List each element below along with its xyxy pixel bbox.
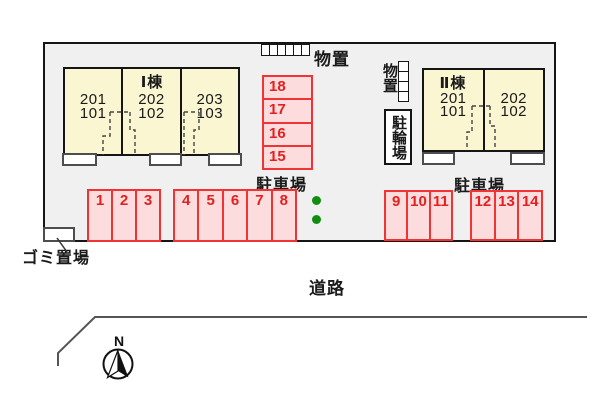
storage-shed-row xyxy=(262,44,310,56)
parking-space-15: 15 xyxy=(264,145,311,168)
parking-space-14: 14 xyxy=(517,192,541,239)
parking-space-10: 10 xyxy=(406,192,428,239)
parking-space-3: 3 xyxy=(135,191,159,240)
parking-space-2: 2 xyxy=(111,191,135,240)
unit-2-2: 202 102 xyxy=(483,70,544,150)
unit-1-3: 203 103 xyxy=(180,69,238,154)
entrance-porch xyxy=(62,153,97,166)
entrance-porch xyxy=(208,153,242,166)
room-number-lower: 102 xyxy=(500,105,527,119)
building-2-name: Ⅱ棟 xyxy=(424,72,482,93)
road-edge-line xyxy=(58,317,587,366)
parking-space-1: 1 xyxy=(89,191,111,240)
parking-space-4: 4 xyxy=(175,191,197,240)
parking-space-18: 18 xyxy=(264,77,311,98)
storage-right-label: 物置 xyxy=(382,63,396,93)
parking-space-5: 5 xyxy=(197,191,221,240)
parking-row-4-8: 4 5 6 7 8 xyxy=(173,189,297,242)
green-marker-dot xyxy=(312,196,321,205)
room-number-lower: 101 xyxy=(80,107,107,121)
parking-space-12: 12 xyxy=(472,192,494,239)
room-number-lower: 102 xyxy=(138,107,165,121)
parking-space-8: 8 xyxy=(271,191,295,240)
parking-space-6: 6 xyxy=(222,191,246,240)
entrance-porch xyxy=(149,153,182,166)
entrance-porch xyxy=(510,152,545,165)
parking-space-9: 9 xyxy=(386,192,406,239)
storage-unit xyxy=(398,91,409,102)
parking-space-7: 7 xyxy=(246,191,270,240)
room-number-lower: 101 xyxy=(440,105,467,119)
parking-column: 18 17 16 15 xyxy=(262,75,313,170)
parking-space-16: 16 xyxy=(264,122,311,145)
north-letter: N xyxy=(114,333,124,349)
north-arrow-icon: N xyxy=(104,333,133,379)
storage-shed-column xyxy=(398,62,409,102)
road-label: 道路 xyxy=(309,274,345,299)
room-number-lower: 103 xyxy=(197,107,224,121)
entrance-porch xyxy=(422,152,455,165)
unit-1-1: 201 101 xyxy=(65,69,121,154)
green-marker-dot xyxy=(312,215,321,224)
garbage-box xyxy=(43,227,75,242)
parking-row-1-3: 1 2 3 xyxy=(87,189,161,242)
parking-space-17: 17 xyxy=(264,98,311,121)
bicycle-parking-label: 駐輪場 xyxy=(391,115,405,160)
site-plan: 物置 201 101 202 102 203 103 Ⅰ棟 201 101 20… xyxy=(0,0,600,400)
parking-space-11: 11 xyxy=(429,192,451,239)
parking-space-13: 13 xyxy=(494,192,518,239)
storage-unit xyxy=(301,44,310,56)
garbage-label: ゴミ置場 xyxy=(22,244,90,268)
storage-top-label: 物置 xyxy=(314,45,350,70)
building-1-name: Ⅰ棟 xyxy=(120,71,184,92)
parking-row-9-11: 9 10 11 xyxy=(384,190,453,241)
parking-row-12-14: 12 13 14 xyxy=(470,190,543,241)
bicycle-parking-box: 駐輪場 xyxy=(384,109,412,165)
